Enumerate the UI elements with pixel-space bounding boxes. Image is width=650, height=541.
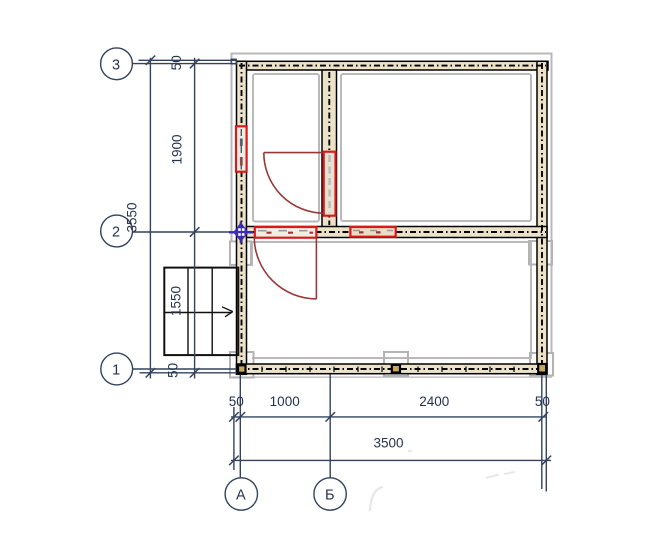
svg-text:3: 3 <box>112 57 120 73</box>
svg-text:1: 1 <box>112 363 120 379</box>
svg-text:3550: 3550 <box>125 202 140 232</box>
svg-text:1000: 1000 <box>270 394 300 409</box>
svg-text:1900: 1900 <box>170 134 185 164</box>
svg-text:50: 50 <box>229 394 244 409</box>
svg-text:1550: 1550 <box>169 286 184 316</box>
svg-text:А: А <box>236 488 246 504</box>
svg-text:2: 2 <box>112 225 120 241</box>
svg-text:50: 50 <box>166 363 181 378</box>
svg-text:50: 50 <box>169 55 184 70</box>
svg-text:Б: Б <box>325 488 335 504</box>
svg-text:3500: 3500 <box>373 435 403 450</box>
svg-text:50: 50 <box>535 394 550 409</box>
svg-text:2400: 2400 <box>419 394 449 409</box>
